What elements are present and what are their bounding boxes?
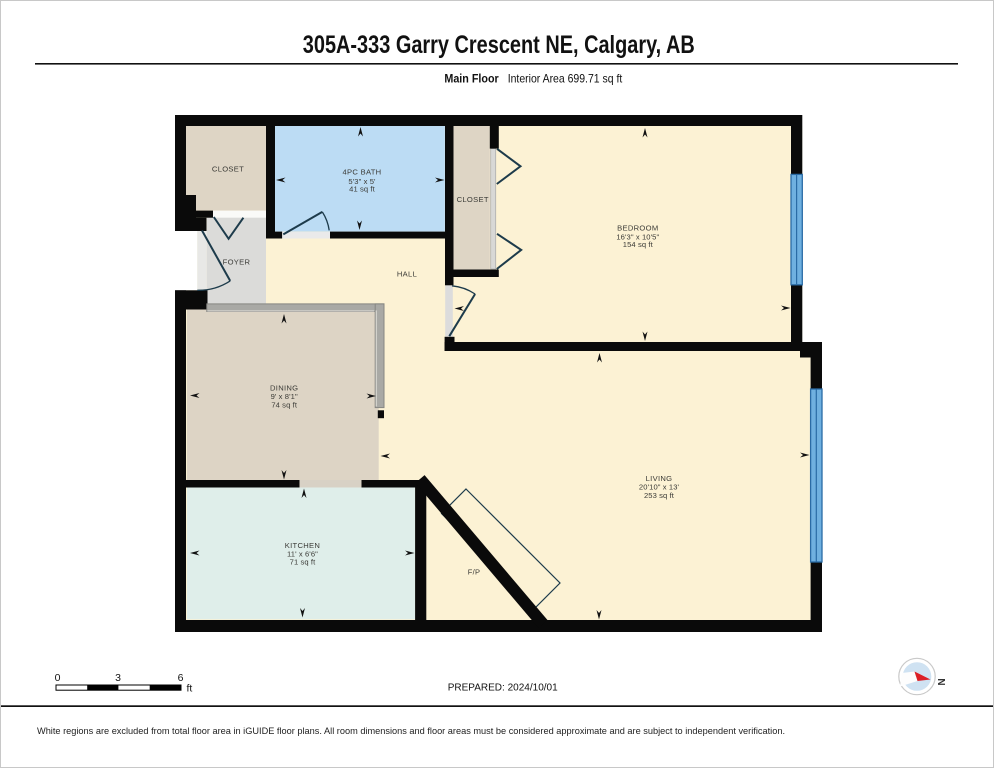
svg-text:3: 3 — [115, 672, 121, 684]
svg-text:F/P: F/P — [468, 568, 481, 577]
svg-text:0: 0 — [55, 672, 61, 684]
svg-text:Main Floor: Main Floor — [444, 71, 499, 85]
svg-text:CLOSET: CLOSET — [212, 165, 244, 174]
svg-text:71 sq ft: 71 sq ft — [290, 558, 316, 567]
svg-text:253 sq ft: 253 sq ft — [644, 491, 675, 500]
svg-text:305A-333 Garry Crescent NE, Ca: 305A-333 Garry Crescent NE, Calgary, AB — [303, 31, 695, 59]
svg-text:CLOSET: CLOSET — [457, 195, 489, 204]
svg-text:4PC BATH: 4PC BATH — [343, 168, 382, 177]
svg-text:ft: ft — [187, 683, 193, 695]
svg-text:41 sq ft: 41 sq ft — [349, 185, 375, 194]
svg-text:HALL: HALL — [397, 270, 417, 279]
svg-text:PREPARED: 2024/10/01: PREPARED: 2024/10/01 — [448, 683, 558, 694]
svg-text:N: N — [935, 678, 946, 685]
svg-text:Interior Area 699.71 sq ft: Interior Area 699.71 sq ft — [508, 71, 623, 85]
svg-text:BEDROOM: BEDROOM — [617, 224, 658, 233]
svg-text:FOYER: FOYER — [223, 258, 251, 267]
svg-text:154 sq ft: 154 sq ft — [623, 240, 654, 249]
svg-text:74 sq ft: 74 sq ft — [271, 401, 297, 410]
svg-text:White regions are excluded fro: White regions are excluded from total fl… — [37, 726, 785, 736]
svg-text:6: 6 — [178, 672, 184, 684]
